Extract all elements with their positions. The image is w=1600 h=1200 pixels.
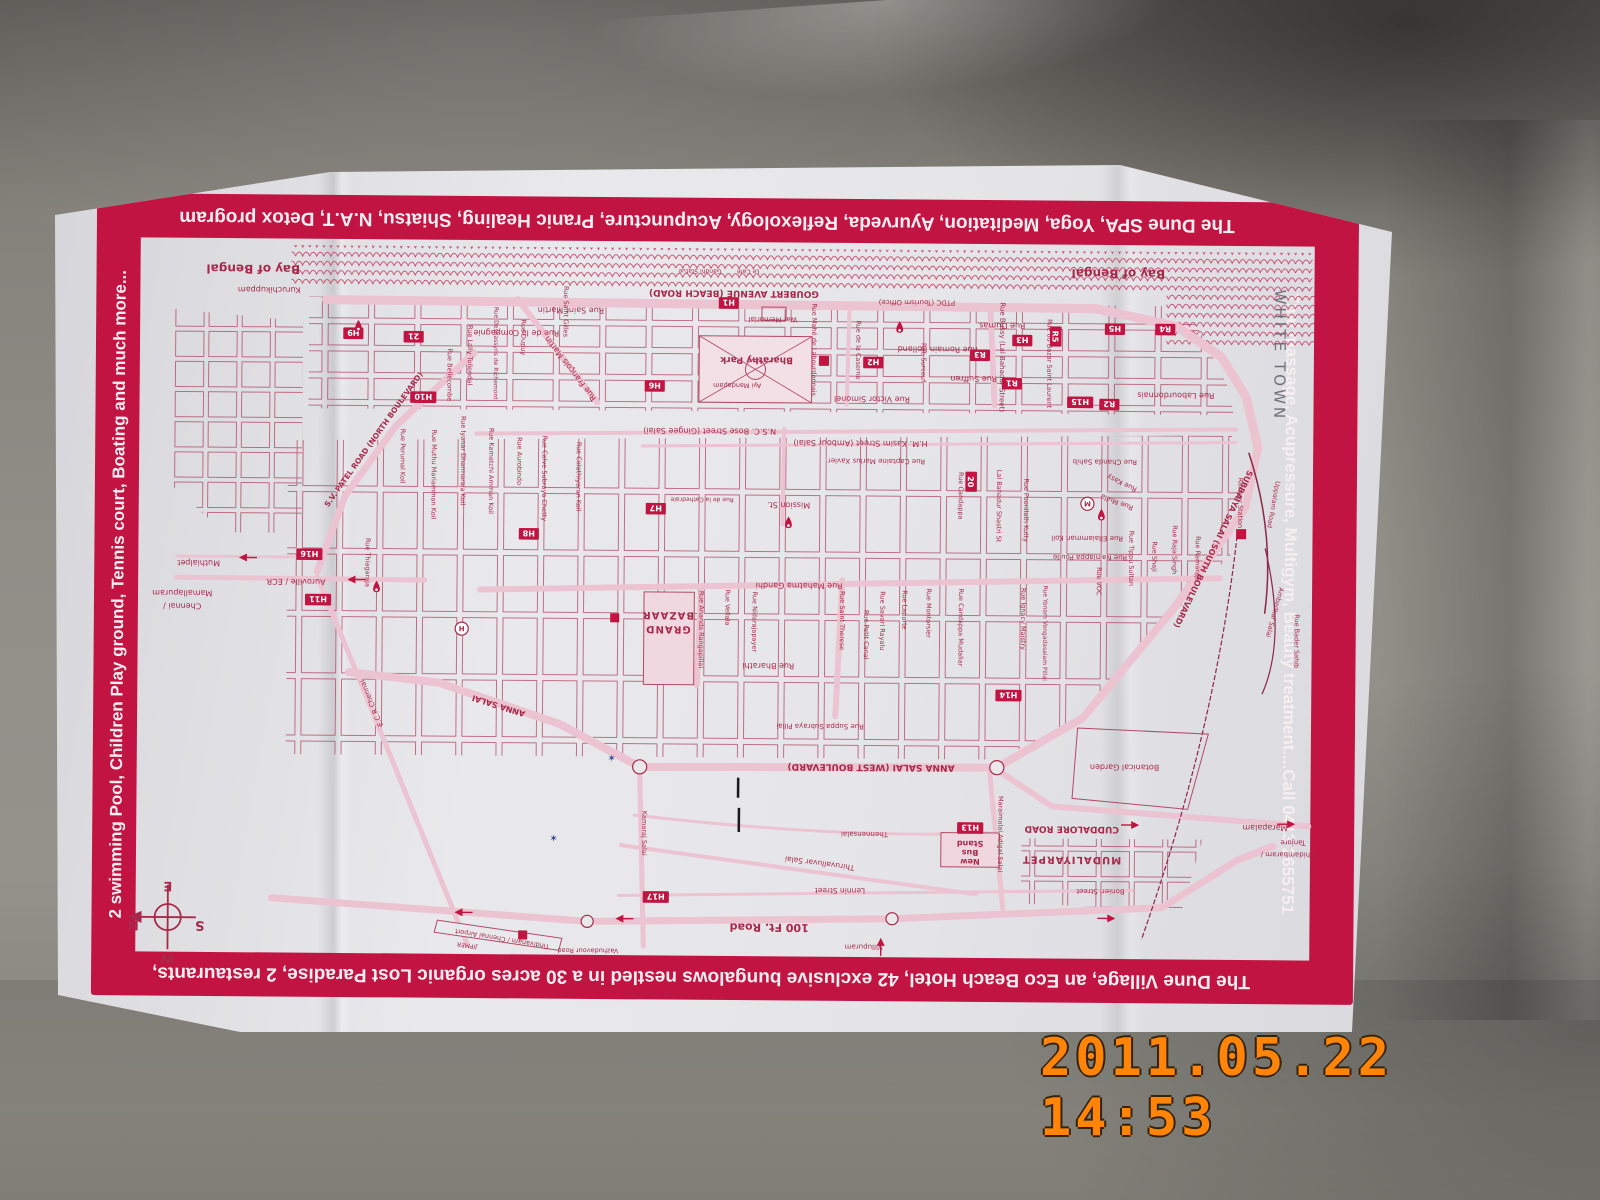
svg-text:H6: H6 xyxy=(648,381,661,390)
map-label: Rue Chanda Sahib xyxy=(1072,457,1137,467)
map-label: Rue Muthu Mariamman Koil xyxy=(429,430,438,520)
svg-text:H2: H2 xyxy=(867,357,879,366)
map-label: Rue VOC xyxy=(1095,567,1103,596)
map-label: Bay of Bengal xyxy=(206,261,300,276)
map-label: Bonieri Street xyxy=(1076,887,1125,896)
map-site-square xyxy=(518,930,527,939)
map-label: Rue Saint Gilles xyxy=(562,286,570,338)
map-label: Mission St. xyxy=(767,500,810,509)
map-marker: H16 xyxy=(296,548,322,560)
map-label: Rue Dupuy xyxy=(519,319,527,355)
roundabout xyxy=(886,913,898,925)
camera-date-stamp: 2011.05.22 14:53 xyxy=(1040,1028,1580,1098)
svg-text:H10: H10 xyxy=(414,392,432,401)
map-label: S xyxy=(195,917,205,932)
map-label: Rue de la Caserne xyxy=(854,320,862,379)
map-label: Rue de la Compagnie xyxy=(473,328,559,338)
svg-text:R4: R4 xyxy=(1159,324,1171,333)
map-label: Auroville / ECR xyxy=(266,577,326,586)
map-marker: H14 xyxy=(995,690,1021,702)
map-marker: H11 xyxy=(305,594,331,606)
map-label: Gandhi Statue xyxy=(678,267,721,274)
map-site-square xyxy=(819,356,829,366)
map-label: Le Café xyxy=(737,268,760,276)
direction-arrow-icon xyxy=(1121,821,1139,829)
map-label: Rue Suppa Subraya Pillai xyxy=(776,722,864,732)
map-label: N.S.C. Bose Street (Gingee Salai) xyxy=(643,426,776,436)
map-label: Stand xyxy=(957,839,984,848)
svg-text:R3: R3 xyxy=(974,350,986,359)
map-label: Bharathy Park xyxy=(719,354,793,365)
map-label: Rue Iyanar Dharmaraja Koil xyxy=(459,416,468,505)
map-marker: H1 xyxy=(719,297,739,309)
map-label: Vazhudavour Road xyxy=(557,946,618,954)
map-label: Chidambaram / xyxy=(1260,850,1315,859)
fold-mark xyxy=(738,778,739,832)
map-print: The Dune SPA, Yoga, Meditation, Ayurveda… xyxy=(47,155,1404,1046)
map-label: Rue Mahatma Gandhi xyxy=(756,581,843,591)
map-label: Rue Nidarajapayer xyxy=(750,592,758,653)
svg-text:H5: H5 xyxy=(1108,324,1121,333)
map-marker: H5 xyxy=(1105,323,1125,335)
map-label: Rue Ignacy Maistry xyxy=(1019,588,1027,650)
map-marker: R4 xyxy=(1155,324,1175,336)
map-circle-symbol: M xyxy=(1081,497,1094,510)
map-marker: 20 xyxy=(965,472,977,492)
map-marker: H7 xyxy=(646,503,666,515)
map-label: Rue Saint Martin xyxy=(538,305,605,315)
photo-scene: The Dune SPA, Yoga, Meditation, Ayurveda… xyxy=(0,0,1600,1200)
map-label: Rue Saint Therese xyxy=(838,591,846,650)
map-label: Rue Ellaiamman Koil xyxy=(1051,534,1123,544)
map-label: Rue Savari Rayalu xyxy=(878,591,886,650)
svg-text:H8: H8 xyxy=(522,529,535,538)
svg-text:R5: R5 xyxy=(1050,331,1059,343)
map-marker: H8 xyxy=(519,528,539,540)
map-site-square xyxy=(1236,529,1246,539)
map-label: H.M. Kasim Street (Ambour Salai) xyxy=(793,438,927,448)
map-label: Rue Raja Singh xyxy=(1170,525,1178,574)
map-marker: H3 xyxy=(1012,335,1032,347)
map-marker: H6 xyxy=(645,380,665,392)
map-label: Rue Kamatchi Amman Koil xyxy=(487,428,496,514)
map-label: ✶ xyxy=(549,834,558,845)
map-label: Mamallapuram xyxy=(152,588,212,597)
map-label: Rue Yanam Vengadasalam Pillai xyxy=(1041,586,1049,682)
map-label: Rue Lally Tollendal xyxy=(466,325,474,385)
map-label: Rue Captaine Marius Xavier xyxy=(828,456,926,466)
map-label: Rue Tippu Sultan xyxy=(1127,531,1135,586)
map-label: Thennensalai xyxy=(841,830,889,839)
map-marker: R1 xyxy=(1002,378,1022,390)
map-label: Rue Calve Subraya Chetty xyxy=(540,436,549,522)
svg-text:H13: H13 xyxy=(961,823,979,832)
map-marker: R5 xyxy=(1050,326,1062,346)
map-label: Rue Shaji xyxy=(1150,541,1158,572)
map-label: Rue Nainiappa Poulle xyxy=(1053,553,1127,563)
map-label: Rue Romain Rolland xyxy=(898,344,978,354)
svg-text:H14: H14 xyxy=(999,690,1017,699)
map-marker: R2 xyxy=(1099,399,1119,411)
map-label: W xyxy=(160,950,175,965)
map-label: Rue Desbassyns de Richemont xyxy=(492,307,500,401)
direction-arrow-icon xyxy=(239,553,257,561)
map-label: Kamaraj Salai xyxy=(640,811,648,856)
map-label: GRAND xyxy=(645,623,691,634)
map-label: MUDALIYARPET xyxy=(1022,853,1121,865)
map-label: Rue Laporte xyxy=(900,590,908,629)
map-label: Villupuram xyxy=(844,943,882,952)
svg-text:H3: H3 xyxy=(1016,335,1028,344)
map-label: Tanjore xyxy=(1280,838,1306,847)
map-label: Rue Bellecombe xyxy=(445,349,453,402)
map-label: Rue Perumal Koil xyxy=(398,429,406,484)
map-label: Chennai / xyxy=(163,601,202,610)
map-label: Uppalam Road xyxy=(1265,480,1282,528)
map-label: Rue Montorsier xyxy=(924,589,932,639)
map-label: ANNA SALAI (WEST BOULEVARD) xyxy=(787,761,954,772)
map-label: ✶ xyxy=(607,754,616,765)
map-label: Rue Labourdonnais xyxy=(1137,390,1214,400)
map-label: E xyxy=(163,878,172,893)
map-label: Railway Station xyxy=(1236,478,1244,528)
grand-bazaar-shape xyxy=(643,592,694,685)
map-label: Rue Suffren xyxy=(950,374,997,383)
map-label: Rue Bharathi xyxy=(742,661,794,670)
svg-text:R1: R1 xyxy=(1006,378,1018,387)
fabric-wrinkle xyxy=(536,0,1245,174)
map-marker: H2 xyxy=(863,357,883,369)
map-label: Rue Candappa xyxy=(957,472,965,520)
svg-text:H1: H1 xyxy=(722,298,735,307)
map-label: New xyxy=(960,857,980,866)
map-label: Rue Vellala xyxy=(723,590,731,626)
map-label: Maraimalai Adigal Salai xyxy=(996,796,1005,872)
roundabout xyxy=(633,760,647,774)
map-label: Rue Poonilath Kutty xyxy=(1022,478,1031,542)
map-label: Botanical Garden xyxy=(1090,762,1159,772)
map-label: GOUBERT AVENUE (BEACH ROAD) xyxy=(649,287,819,298)
svg-text:H15: H15 xyxy=(1071,397,1089,406)
map-marker: H10 xyxy=(410,391,436,403)
fabric-wrinkle xyxy=(1380,120,1600,1020)
map-label: Rue Bader Sahib xyxy=(1292,614,1300,668)
svg-text:H17: H17 xyxy=(647,892,665,901)
map-marker: H15 xyxy=(1067,396,1093,408)
map-label: War Memorial xyxy=(749,315,798,324)
map-label: Bay of Bengal xyxy=(1072,266,1166,281)
roundabout xyxy=(581,915,593,927)
map-label: Rue Calathiyaran Koil xyxy=(574,442,583,512)
map-label: Rue Candappa Mudaliar xyxy=(956,589,965,667)
map-label: Lal Bahadur Shastri St xyxy=(995,470,1004,543)
map-label: Rue de la Cathedrale xyxy=(670,495,733,502)
map-label: Ayi Mandapam xyxy=(713,381,761,389)
direction-arrow-icon xyxy=(1097,914,1115,922)
map-label: 100 Ft. Road xyxy=(730,920,809,934)
map-label: WHITE TOWN xyxy=(1270,289,1289,421)
svg-text:H11: H11 xyxy=(309,594,327,603)
map-marker: R3 xyxy=(970,349,990,361)
map-label: Rue Aurobindo xyxy=(515,437,523,485)
svg-text:H16: H16 xyxy=(300,549,318,558)
map-paper: The Dune SPA, Yoga, Meditation, Ayurveda… xyxy=(50,160,1400,1040)
map-label: BAZAAR xyxy=(642,609,694,620)
map-label: Bus xyxy=(961,848,978,857)
map-label: N xyxy=(128,917,139,932)
svg-text:21: 21 xyxy=(408,331,420,340)
map-marker: H13 xyxy=(957,822,983,834)
map-circle-symbol: H xyxy=(455,622,468,635)
city-map: Bay of BengalBay of BengalGandhi StatueL… xyxy=(135,237,1315,958)
svg-text:H: H xyxy=(459,624,465,633)
map-label: Muthialpet xyxy=(177,558,220,567)
svg-text:20: 20 xyxy=(966,476,975,488)
roundabout xyxy=(990,761,1004,775)
map-label: Rue Victor Simonel xyxy=(834,394,910,404)
map-label: Rue Ananda Rangapillai xyxy=(697,591,706,669)
map-marker: 21 xyxy=(404,331,424,343)
svg-text:R2: R2 xyxy=(1103,399,1115,408)
map-site-square xyxy=(610,613,619,622)
map-label: CUDDALORE ROAD xyxy=(1024,823,1119,834)
map-marker: H17 xyxy=(643,891,669,903)
map-label: Rue Petit Canal xyxy=(862,610,870,660)
map-label: Rue Bussy (Lal Bahadur Street) xyxy=(998,302,1008,412)
map-label: Rue Mahé de Labourdonnais xyxy=(810,303,819,396)
map-label: Rue Surcouf xyxy=(919,343,927,383)
svg-text:M: M xyxy=(1084,499,1091,508)
svg-text:H7: H7 xyxy=(650,503,662,512)
map-label: Lennin Street xyxy=(815,886,866,895)
map-label: PTDC (Tourism Office) xyxy=(878,298,955,308)
map-label: Kuruchikuppam xyxy=(238,285,301,294)
